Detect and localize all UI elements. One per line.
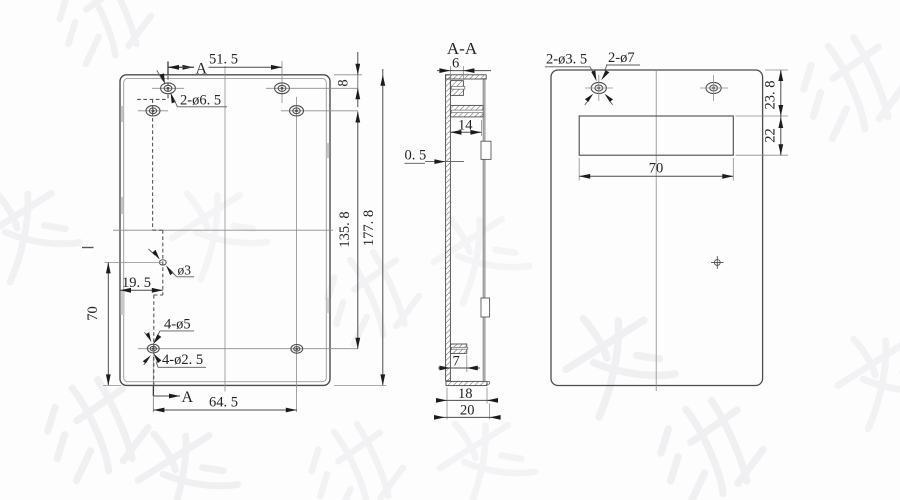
svg-text:8: 8 [336, 79, 352, 86]
svg-text:2-ø3. 5: 2-ø3. 5 [546, 52, 587, 68]
svg-text:70: 70 [649, 161, 664, 177]
svg-text:18: 18 [458, 386, 473, 402]
svg-text:2-ø7: 2-ø7 [608, 50, 635, 66]
svg-text:0. 5: 0. 5 [405, 148, 427, 164]
svg-text:51. 5: 51. 5 [209, 52, 238, 68]
svg-text:6: 6 [452, 56, 459, 72]
svg-text:2-ø6. 5: 2-ø6. 5 [180, 93, 221, 109]
svg-text:70: 70 [85, 306, 101, 321]
svg-text:4-ø5: 4-ø5 [164, 317, 191, 333]
svg-text:22: 22 [763, 128, 779, 143]
svg-text:A: A [182, 389, 194, 406]
svg-text:135. 8: 135. 8 [337, 211, 353, 247]
svg-text:A: A [196, 60, 208, 77]
svg-text:20: 20 [460, 403, 475, 419]
svg-text:23. 8: 23. 8 [763, 81, 779, 110]
svg-text:64. 5: 64. 5 [209, 395, 238, 411]
svg-text:ø3: ø3 [178, 263, 192, 278]
svg-text:177. 8: 177. 8 [361, 210, 377, 246]
svg-text:19. 5: 19. 5 [122, 275, 151, 291]
svg-text:14: 14 [458, 118, 473, 134]
svg-text:7: 7 [453, 354, 460, 370]
svg-text:4-ø2. 5: 4-ø2. 5 [162, 352, 203, 368]
